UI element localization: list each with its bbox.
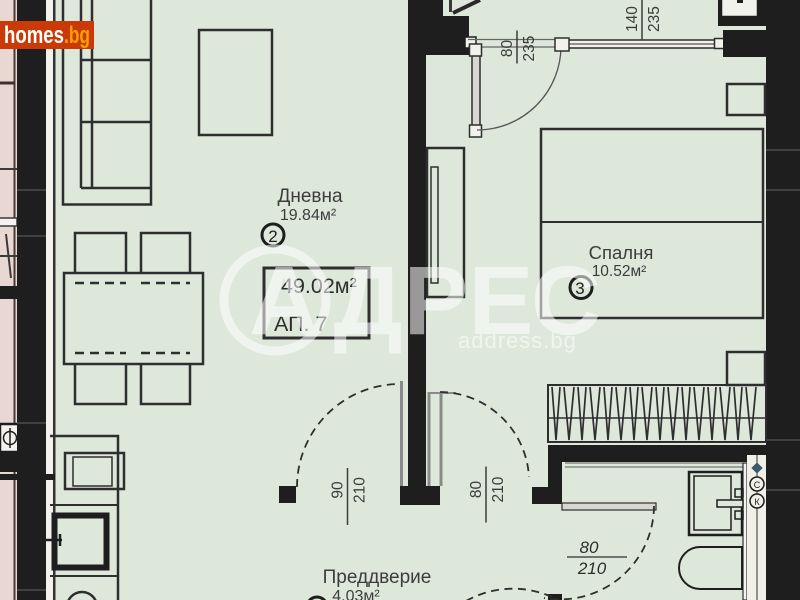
svg-text:homes: homes xyxy=(4,22,64,49)
svg-text:80: 80 xyxy=(468,481,485,499)
svg-text:19.84м²: 19.84м² xyxy=(280,207,337,224)
svg-text:210: 210 xyxy=(352,477,369,503)
svg-text:210: 210 xyxy=(577,559,607,578)
svg-text:235: 235 xyxy=(646,6,663,32)
svg-text:Дневна: Дневна xyxy=(277,186,343,207)
svg-text:.bg: .bg xyxy=(64,22,90,49)
svg-text:80: 80 xyxy=(580,538,599,557)
svg-text:2: 2 xyxy=(268,227,277,246)
svg-text:А: А xyxy=(249,246,319,355)
svg-text:address.bg: address.bg xyxy=(458,328,577,353)
svg-text:С: С xyxy=(754,480,761,490)
svg-text:К: К xyxy=(754,497,760,507)
svg-text:80: 80 xyxy=(499,40,516,58)
svg-text:235: 235 xyxy=(521,36,538,62)
svg-text:Преддверие: Преддверие xyxy=(323,567,432,588)
svg-text:210: 210 xyxy=(490,476,507,502)
svg-text:4.03м²: 4.03м² xyxy=(332,588,380,600)
svg-text:Д: Д xyxy=(333,246,402,355)
svg-text:140: 140 xyxy=(624,6,641,32)
svg-text:90: 90 xyxy=(330,481,347,499)
